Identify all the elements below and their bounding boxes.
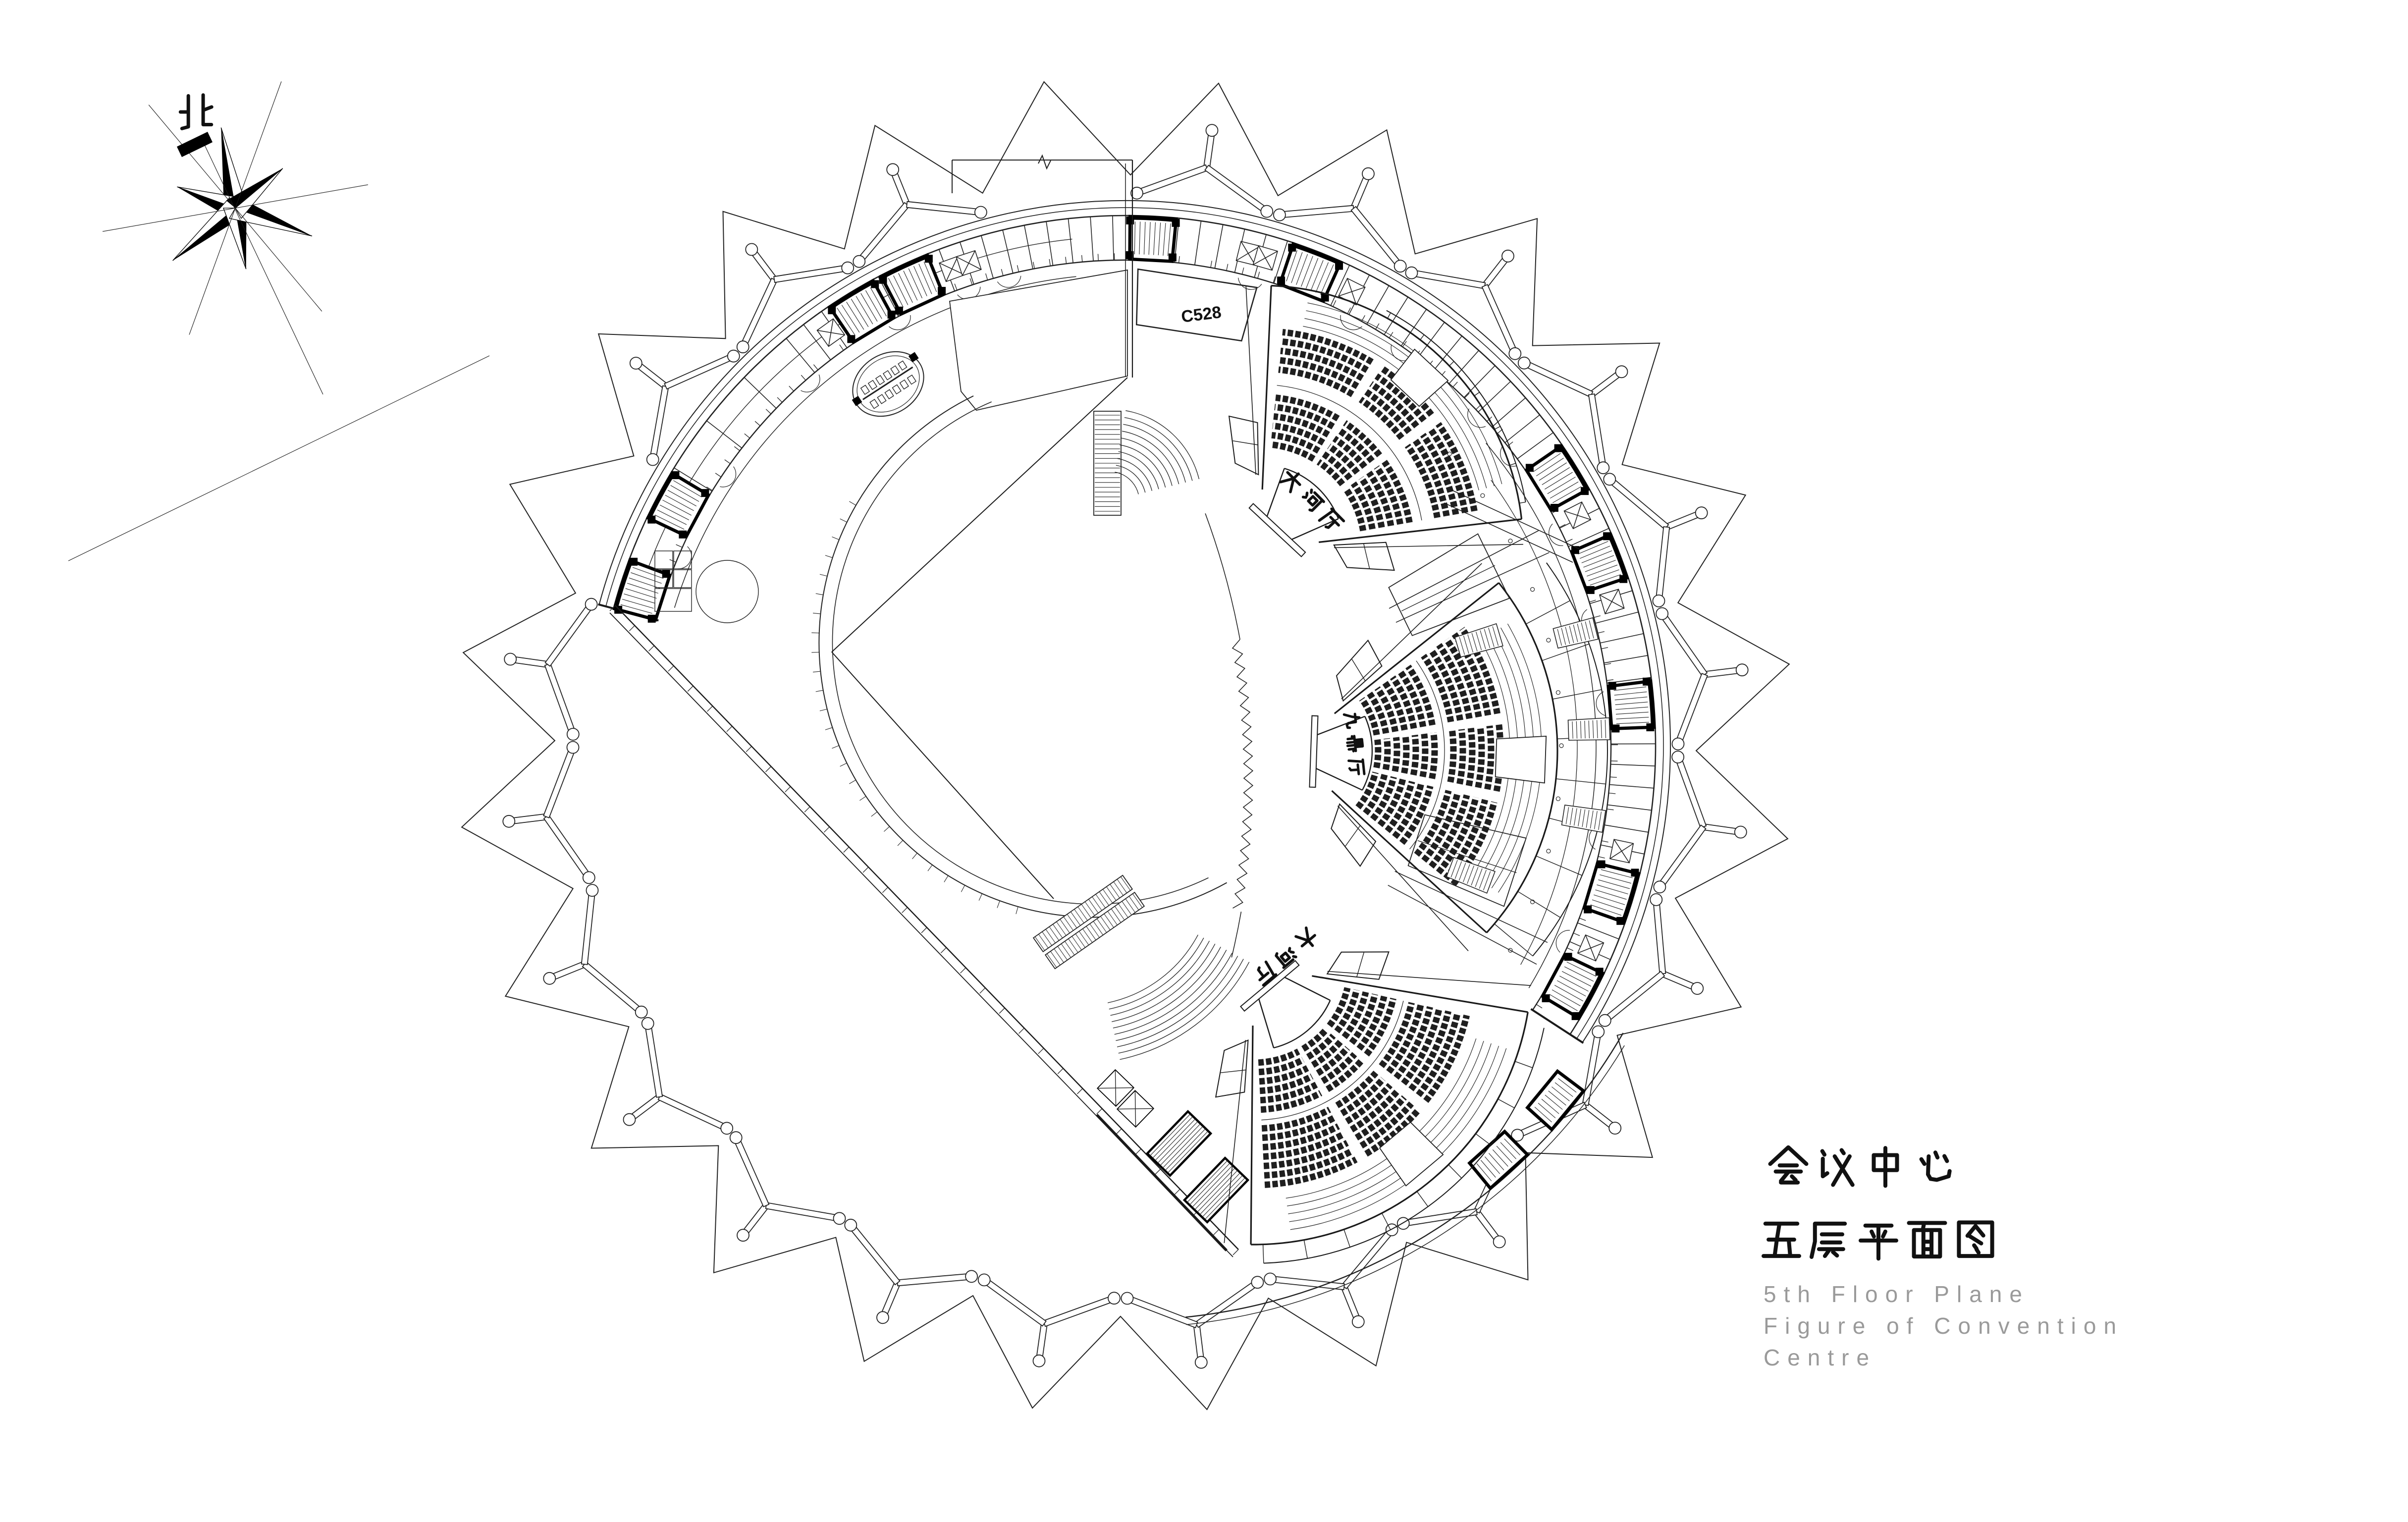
svg-text:Figure of Convention: Figure of Convention — [1764, 1313, 2124, 1339]
svg-text:5th Floor Plane: 5th Floor Plane — [1764, 1281, 2030, 1307]
svg-text:Centre: Centre — [1764, 1345, 1876, 1370]
